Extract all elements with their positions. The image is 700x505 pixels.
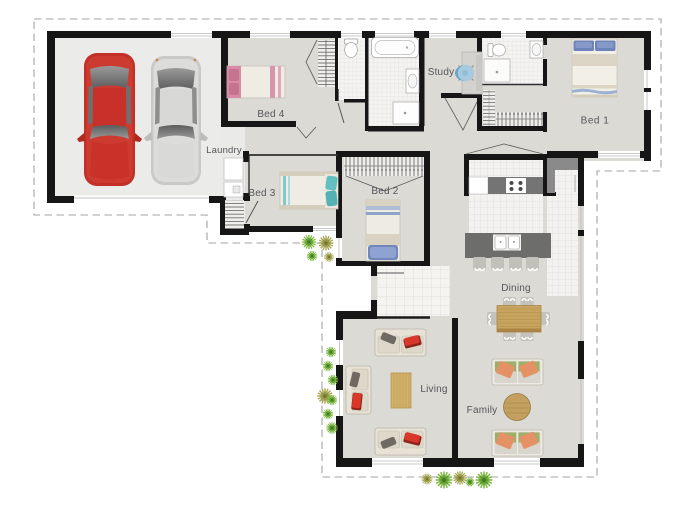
svg-text:Bed 1: Bed 1 (581, 116, 610, 127)
svg-text:Bed 3: Bed 3 (248, 188, 275, 199)
svg-text:Family: Family (467, 405, 498, 416)
svg-text:Living: Living (420, 384, 447, 395)
svg-text:Bed 4: Bed 4 (257, 109, 284, 120)
svg-text:Laundry: Laundry (206, 145, 242, 156)
svg-text:Bed 2: Bed 2 (371, 186, 398, 197)
svg-text:Study: Study (428, 67, 455, 78)
svg-text:Dining: Dining (501, 283, 531, 294)
